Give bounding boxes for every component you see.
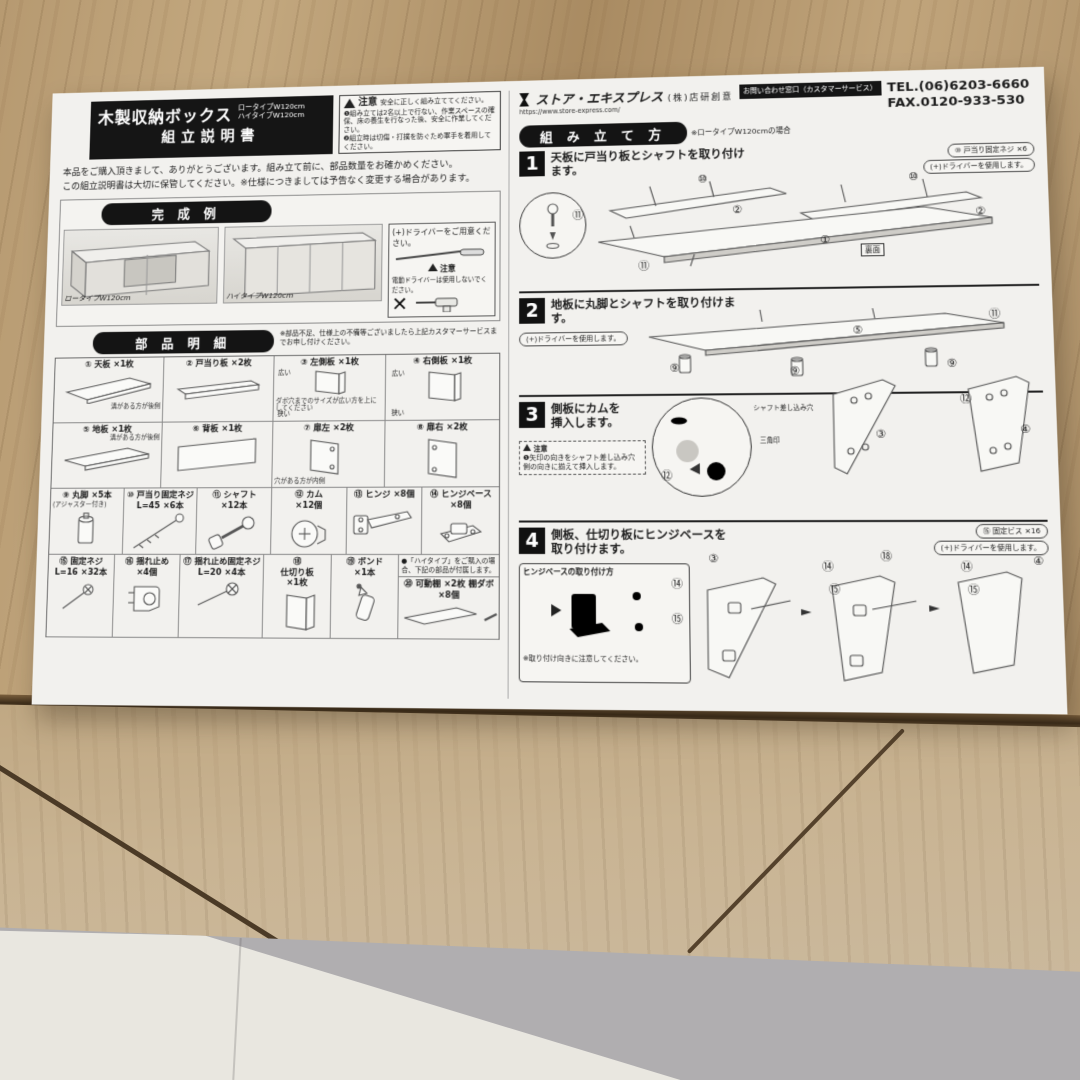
hinge-base-howto-title: ヒンジベースの取り付け方: [523, 566, 686, 578]
part-cell: ⑪ シャフト ×12本: [196, 488, 272, 555]
part-cell: ② 戸当り板 ×2枚: [163, 356, 275, 422]
step-number: 4: [519, 527, 545, 553]
top-panel-icon: [63, 370, 155, 404]
part-cell: ⑩ 戸当り固定ネジ L=45 ×6本: [122, 489, 198, 556]
instruction-sheet: 木製収納ボックス ロータイプW120cm ハイタイプW120cm 組立説明書 注…: [32, 67, 1068, 715]
part-qty: ×1枚: [113, 359, 134, 369]
callout: ③: [708, 553, 718, 564]
part-number: ①: [85, 360, 92, 370]
hinge-icon: [350, 501, 418, 541]
callout: ⑨: [669, 363, 679, 374]
hinge-base-howto-note: ※取り付け向きに注意してください。: [523, 653, 687, 664]
fax-number: FAX.0120-933-530: [887, 93, 1030, 112]
part-size: L=20: [198, 567, 222, 577]
part-number: ⑧: [417, 422, 424, 432]
movable-shelf-icon: [401, 601, 499, 628]
step-tool-note: (+)ドライバーを使用します。: [933, 540, 1049, 555]
part-size: L=45: [137, 501, 161, 511]
assembly-step-1: 1 天板に戸当り板とシャフトを取り付けます。 ⑩ 戸当り固定ネジ ×6 (+)ド…: [519, 139, 1039, 291]
parts-list-header: 部 品 明 細: [93, 330, 275, 354]
part-cell: ⑫ カム ×12個: [271, 488, 347, 555]
part-number: ⑫: [295, 490, 303, 500]
part-name: 固定ネジ: [70, 557, 103, 567]
callout: ⑱: [880, 551, 892, 562]
assembly-header: 組 み 立 て 方: [519, 121, 687, 147]
step-number: 2: [519, 297, 545, 323]
side-panels-drawing: [822, 368, 1045, 482]
finished-example-section: 完 成 例 ロータイプW120cm: [56, 190, 501, 326]
step-number: 3: [519, 401, 545, 427]
shaft-hole-label: シャフト差し込み穴: [753, 404, 813, 412]
part-cell: ⑮ 固定ネジ L=16 ×32本: [46, 555, 114, 638]
part-number: ⑨: [62, 491, 69, 501]
part-number: ⑰: [183, 557, 191, 567]
tool-caution-title: 注意: [440, 264, 456, 273]
part-qty: ×32本: [81, 567, 108, 577]
warning-triangle-icon: [523, 443, 531, 450]
part-cell: ④ 右側板 ×1枚 広い 狭い: [386, 353, 500, 420]
door-left-icon: [281, 434, 375, 478]
company-name: (株)店研創意: [667, 92, 733, 103]
company-logo: ストア・エキスプレス (株)店研創意 https://www.store-exp…: [519, 85, 733, 116]
instruction-sheet-paper: 木製収納ボックス ロータイプW120cm ハイタイプW120cm 組立説明書 注…: [32, 67, 1068, 715]
callout: ⑭: [961, 562, 973, 574]
caution-text: ❶矢印の向きをシャフト差し込み穴側の向きに揃えて挿入します。: [523, 453, 642, 472]
tool-note: (+)ドライバーをご用意ください。: [392, 225, 492, 248]
callout: ⑫: [960, 394, 972, 405]
finished-example-header: 完 成 例: [101, 200, 271, 225]
caution-title: 注意: [358, 97, 377, 109]
part-number: ⑬: [354, 490, 362, 500]
part-name: 可動棚: [415, 580, 441, 590]
cam-icon: [279, 512, 338, 552]
product-title: 木製収納ボックス: [98, 102, 233, 129]
part-cell: ⑲ ボンド ×1本: [330, 555, 399, 639]
part-number: ⑯: [125, 557, 133, 567]
assembly-step-3: 3 側板にカムを挿入します。 注意 ❶矢印の向きをシャフト差し込み穴側の向きに揃…: [519, 390, 1048, 520]
part-cell: ⑧ 扉右 ×2枚: [385, 420, 499, 488]
part-name: 天板: [94, 360, 110, 370]
part-name: 仕切り板: [280, 568, 314, 578]
part-qty: ×2枚: [231, 358, 252, 368]
part-qty: ×4本: [224, 567, 245, 577]
hinge-base-icon: [432, 511, 488, 551]
part-qty: ×1枚: [338, 357, 359, 367]
part-tag-narrow: 狭い: [277, 411, 290, 419]
warning-triangle-icon: [428, 263, 438, 271]
callout: ⑮: [829, 585, 841, 596]
assembly-step-4: 4 側板、仕切り板にヒンジベースを取り付けます。 ⑮ 固定ビス ×16 (+)ド…: [519, 519, 1055, 710]
part-cell: ⑰ 揺れ止め固定ネジ L=20 ×4本: [179, 555, 264, 638]
product-type-high: ハイタイプW120cm: [238, 111, 305, 122]
callout: ⑨: [789, 366, 799, 377]
callout: ⑤: [852, 325, 862, 336]
screwdriver-icon: [392, 247, 490, 262]
part-number: ⑱: [293, 557, 302, 567]
part-name: 左側板: [310, 357, 335, 367]
part-number: ⑪: [212, 491, 220, 501]
part-cell: ③ 左側板 ×1枚 ダボ穴までのサイズが広い方を上にしてください 広い 狭い: [273, 355, 386, 422]
part-qty: ×5本: [91, 491, 112, 501]
divider-panel-icon: [272, 589, 320, 636]
shaft-detail-inset: ⑪: [519, 192, 586, 259]
part-qty: ×12個: [295, 500, 322, 510]
part-name: 扉左: [313, 423, 330, 433]
caution-item-1: ❶組み立ては2名以上で行ない、作業スペースの確保、床の養生を行なった後、安全に作…: [343, 106, 496, 135]
part-name: ヒンジ: [365, 490, 390, 500]
right-side-panel-icon: [395, 367, 490, 407]
step-tool-note: ⑮ 固定ビス ×16: [975, 523, 1048, 538]
panels-hinge-base-drawing: [697, 564, 1047, 689]
part-number: ⑥: [192, 424, 199, 434]
bottom-panel-icon: [60, 443, 152, 473]
fixing-screw-icon: [55, 578, 106, 614]
part-qty: ×8個: [393, 490, 414, 500]
part-cell: ⑤ 地板 ×1枚 溝がある方が後側: [51, 422, 162, 489]
back-panel-icon: [170, 435, 263, 475]
part-note: ダボ穴までのサイズが広い方を上にしてください: [276, 397, 383, 413]
top-panel-assembly-drawing: [590, 170, 998, 276]
part-number: ⑳: [404, 580, 413, 590]
part-cell: ⑯ 揺れ止め ×4個: [112, 555, 181, 638]
part-qty: ×4個: [136, 567, 157, 577]
caution-title: 注意: [533, 444, 547, 452]
callout: ⑭: [671, 578, 682, 589]
callout: ⑩: [697, 174, 707, 185]
anti-sway-screw-icon: [192, 579, 251, 611]
shaft-insert-illustration: [520, 193, 585, 258]
part-name: 丸脚: [72, 491, 89, 501]
glue-bottle-icon: [342, 579, 386, 624]
step-3-caution-box: 注意 ❶矢印の向きをシャフト差し込み穴側の向きに揃えて挿入します。: [519, 440, 646, 475]
parts-list-header-row: 部 品 明 細 ※部品不足、仕様上の不備等ございましたら上記カスタマーサービスま…: [55, 327, 500, 355]
part-tag-wide: 広い: [278, 369, 291, 377]
part-qty: ×1枚: [286, 578, 307, 588]
part-cell: ⑨ 丸脚 ×5本 (アジャスター付き): [49, 489, 124, 555]
prohibited-x-mark: ✕: [392, 294, 409, 314]
door-right-icon: [394, 433, 489, 483]
finished-example-high-type-image: ハイタイプW120cm: [223, 224, 383, 304]
callout: ⑮: [968, 585, 980, 597]
part-qty: ×8個: [450, 500, 472, 510]
part-name: 戸当り板: [195, 358, 228, 368]
part-name-2: 棚ダボ: [468, 580, 494, 590]
part-qty: ×2枚: [446, 422, 467, 432]
power-drill-icon: [410, 294, 469, 312]
finished-example-high-caption: ハイタイプW120cm: [226, 290, 293, 302]
anti-sway-bracket-icon: [121, 578, 172, 614]
tool-caution-text: 電動ドライバーは使用しないでください。: [392, 273, 492, 294]
finished-example-low-type-image: ロータイプW120cm: [61, 227, 219, 306]
part-cell: ① 天板 ×1枚 溝がある方が後側: [54, 357, 165, 423]
part-number: ⑤: [83, 425, 90, 435]
part-name: 地板: [92, 425, 108, 435]
caution-lead: 安全に正しく組み立ててください。: [380, 96, 488, 107]
part-number: ②: [186, 359, 193, 369]
shaft-icon: [202, 512, 265, 552]
part-qty: ×2枚: [444, 580, 466, 590]
photo-of-assembly-manual: 木製収納ボックス ロータイプW120cm ハイタイプW120cm 組立説明書 注…: [0, 0, 1080, 1080]
step-title: 側板、仕切り板にヒンジベースを取り付けます。: [519, 527, 733, 558]
sheet-header: 木製収納ボックス ロータイプW120cm ハイタイプW120cm 組立説明書 注…: [89, 91, 501, 160]
part-number: ④: [413, 356, 420, 366]
product-title-badge: 木製収納ボックス ロータイプW120cm ハイタイプW120cm 組立説明書: [89, 95, 333, 160]
part-tag-wide: 広い: [392, 370, 405, 378]
hinge-base-howto-box: ヒンジベースの取り付け方 ⑭ ⑮ ※取り付け向きに注意してください。: [519, 563, 691, 683]
safety-caution-box: 注意 安全に正しく組み立ててください。 ❶組み立ては2名以上で行ない、作業スペー…: [338, 91, 501, 154]
part-name: 戸当り固定ネジ: [137, 491, 194, 501]
parts-grid-row-3: ⑨ 丸脚 ×5本 (アジャスター付き) ⑩ 戸当り固定ネジ: [48, 488, 500, 556]
callout: ⑪: [638, 261, 649, 272]
part-number: ⑩: [127, 491, 134, 501]
part-cell: ⑥ 背板 ×1枚: [161, 422, 273, 489]
part-name: シャフト: [223, 490, 256, 500]
round-leg-icon: [57, 509, 115, 549]
callout: ⑨: [946, 358, 957, 369]
part-number: ⑭: [430, 490, 439, 500]
callout: ②: [975, 206, 986, 217]
part-size: L=16: [55, 567, 79, 577]
step-tool-note: ⑩ 戸当り固定ネジ ×6: [947, 141, 1034, 157]
callout: ⑪: [989, 309, 1001, 320]
parts-grid-row-1: ① 天板 ×1枚 溝がある方が後側 ② 戸当り板 ×2枚: [53, 352, 501, 423]
part-number: ⑦: [303, 423, 310, 433]
back-face-label: 裏面: [861, 243, 885, 256]
part-note: 穴がある方が内側: [274, 478, 382, 486]
part-name: カム: [306, 490, 323, 500]
screwdriver-note-box: (+)ドライバーをご用意ください。 注意 電動ドライバーは使用しないでください。: [388, 221, 496, 317]
assembly-header-note: ※ロータイプW120cmの場合: [691, 124, 791, 137]
part-cell-hitype: ●「ハイタイプ」をご購入の場合、下記の部品が付属します。 ⑳ 可動棚 ×2枚 棚…: [399, 555, 499, 639]
step-1-diagram: ⑪ ⑩ ② ⑩: [519, 169, 1038, 277]
part-number: ⑮: [59, 557, 67, 567]
part-number: ③: [300, 358, 307, 368]
part-qty: ×1枚: [451, 356, 472, 366]
finished-example-low-caption: ロータイプW120cm: [64, 292, 131, 304]
callout: ③: [875, 429, 886, 440]
warning-triangle-icon: [344, 99, 356, 109]
door-stop-board-icon: [172, 369, 265, 403]
part-cell: ⑬ ヒンジ ×8個: [346, 488, 422, 555]
part-qty-2: ×8個: [438, 590, 460, 600]
phone-numbers: TEL.(06)6203-6660 FAX.0120-933-530: [887, 77, 1030, 112]
triangle-mark-label: 三角印: [760, 437, 780, 445]
parts-grid-row-4: ⑮ 固定ネジ L=16 ×32本 ⑯ 揺れ止め ×4個: [45, 555, 499, 640]
callout: ⑩: [908, 171, 918, 182]
callout: ⑫: [661, 470, 672, 481]
long-screw-icon: [128, 512, 191, 552]
part-name: ヒンジベース: [441, 490, 491, 500]
callout: ⑭: [822, 562, 834, 573]
part-qty: ×1本: [354, 568, 375, 578]
part-note: 溝がある方が後側: [56, 403, 161, 411]
sheet-left-column: 木製収納ボックス ロータイプW120cm ハイタイプW120cm 組立説明書 注…: [43, 91, 509, 699]
intro-paragraph: 本品をご購入頂きまして、ありがとうございます。組み立て前に、部品数量をお確かめく…: [62, 157, 501, 194]
caution-item-2: ❷組立時は切傷・打撲を防ぐため軍手を着用してください。: [343, 131, 496, 151]
part-qty: ×6本: [163, 501, 184, 511]
left-side-panel-icon: [283, 368, 377, 398]
callout: ②: [732, 205, 742, 216]
contact-badge: お問い合わせ窓口（カスタマーサービス）: [739, 81, 881, 99]
hinge-base-install-illustration: [523, 577, 676, 652]
part-name: 背板: [202, 424, 219, 434]
part-name: ボンド: [358, 557, 383, 567]
part-number: ⑲: [347, 557, 356, 567]
part-qty: ×1枚: [221, 424, 242, 434]
parts-list-note: ※部品不足、仕様上の不備等ございましたら上記カスタマーサービスまでお申し付けくだ…: [280, 327, 501, 347]
sheet-right-column: ストア・エキスプレス (株)店研創意 https://www.store-exp…: [519, 77, 1054, 704]
part-name: 揺れ止め固定ネジ: [194, 557, 260, 567]
store-express-logo-icon: [519, 93, 529, 107]
cam-detail-inset: ⑫: [651, 397, 752, 497]
hitype-note: ●「ハイタイプ」をご購入の場合、下記の部品が付属します。: [399, 555, 499, 577]
step-number: 1: [519, 151, 545, 177]
part-cell: ⑱ 仕切り板 ×1枚: [263, 555, 332, 639]
part-note: 溝がある方が後側: [55, 434, 160, 442]
part-qty: ×12本: [221, 501, 248, 511]
callout: ①: [820, 235, 830, 246]
part-tag-narrow: 狭い: [391, 410, 404, 418]
callout: ④: [1033, 556, 1044, 568]
part-name: 右側板: [423, 356, 448, 366]
parts-grid-row-2: ⑤ 地板 ×1枚 溝がある方が後側 ⑥ 背板 ×1枚: [50, 420, 500, 489]
part-name: 扉右: [427, 422, 444, 432]
callout: ⑮: [672, 613, 683, 624]
part-note: (アジャスター付き): [53, 501, 122, 509]
callout: ⑪: [572, 211, 583, 222]
part-cell: ⑭ ヒンジベース ×8個: [422, 488, 499, 556]
callout: ④: [1020, 424, 1031, 435]
part-cell: ⑦ 扉左 ×2枚 穴がある方が内側: [272, 421, 385, 489]
product-types: ロータイプW120cm ハイタイプW120cm: [238, 100, 305, 121]
part-name: 揺れ止め: [136, 557, 169, 567]
part-qty: ×2枚: [333, 423, 354, 433]
